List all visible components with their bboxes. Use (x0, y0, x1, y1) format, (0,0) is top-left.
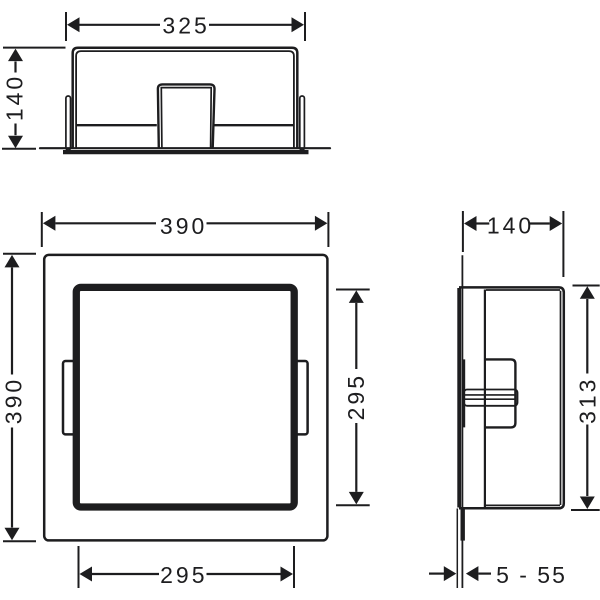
svg-text:140: 140 (2, 74, 28, 121)
svg-text:295: 295 (343, 373, 369, 420)
svg-text:390: 390 (0, 377, 26, 424)
svg-text:140: 140 (487, 212, 534, 238)
svg-text:325: 325 (162, 13, 209, 39)
svg-text:295: 295 (160, 562, 207, 588)
svg-text:390: 390 (160, 213, 207, 239)
svg-text:5 - 55: 5 - 55 (496, 562, 567, 588)
svg-text:313: 313 (575, 377, 600, 424)
